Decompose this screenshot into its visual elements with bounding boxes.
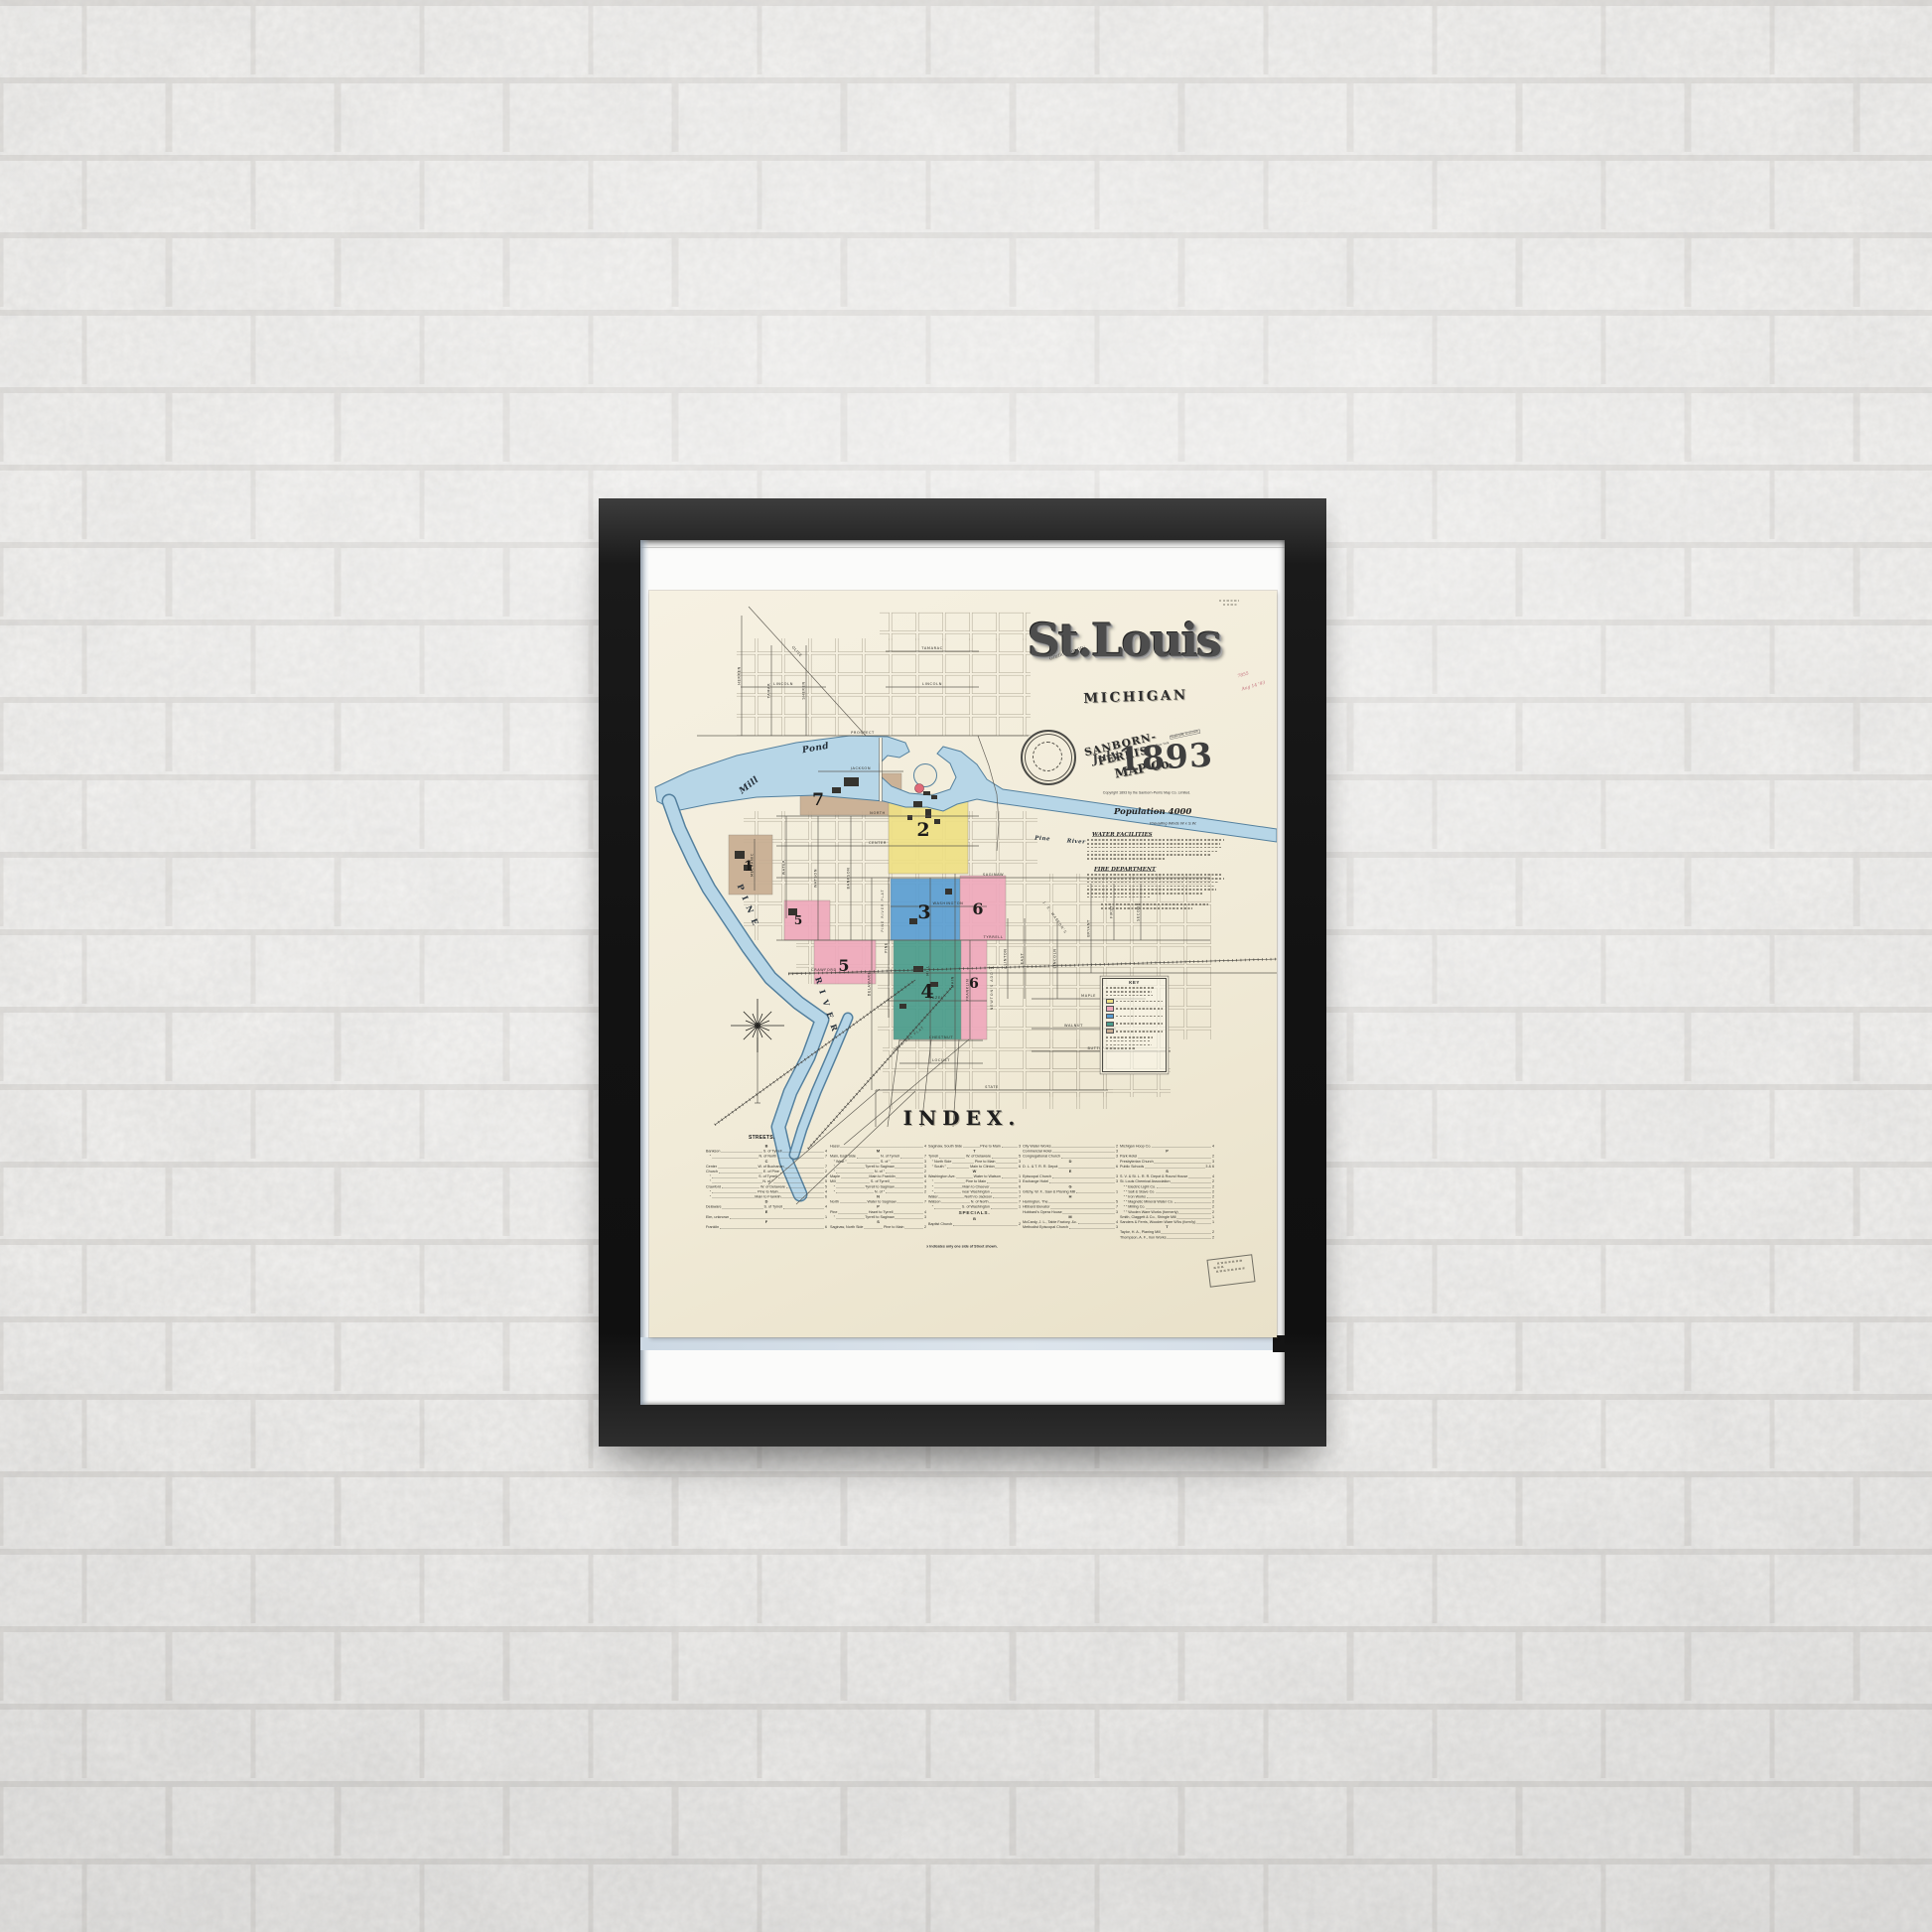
key-title: KEY — [1120, 980, 1149, 983]
street-label: WASHINGTON — [933, 901, 964, 905]
year-label: 1893 — [1117, 736, 1214, 779]
water-facilities-text — [1087, 837, 1226, 862]
street-label: BRYANT — [1086, 919, 1090, 937]
plat-label: NEWTON'S ADD'N — [990, 966, 994, 1010]
street-label: TAMARAC — [920, 646, 942, 650]
street-label: MAPLE — [1081, 994, 1096, 998]
population-label: Population 4000 — [1114, 807, 1191, 817]
street-label: DELAWARE — [867, 971, 871, 996]
mounting-clip — [1273, 1335, 1285, 1352]
street-label: LOCUST — [932, 1058, 950, 1062]
street-label: WATER — [781, 860, 785, 876]
key-box: KEY — [1102, 978, 1167, 1072]
mill-highlight — [915, 784, 924, 793]
building-footprint — [735, 851, 745, 859]
street-label: CLINTON — [1003, 948, 1007, 968]
picture-frame: TAMARACLINCOLNLINCOLNPROSPECTJACKSONNORT… — [599, 498, 1326, 1447]
fire-department-text — [1087, 872, 1226, 900]
plat-label: PINE RIVER PLAT — [881, 889, 885, 931]
index-column: City Water Works2Commercial Hotel3Congre… — [1023, 1144, 1118, 1243]
water-label: River — [1066, 838, 1087, 845]
district-region — [784, 900, 830, 940]
building-footprint — [925, 809, 931, 818]
index-column: Saginaw, South SidePine to Main3TTyrrell… — [928, 1144, 1021, 1243]
street-label: PINE — [884, 942, 888, 953]
sheet-number: 6 — [969, 976, 979, 992]
street-label: SHEREN — [801, 681, 805, 699]
street-label: CENTER — [869, 841, 887, 845]
street-label: MAIN — [950, 976, 954, 988]
street-label: WATSON — [813, 869, 817, 888]
street-label: TYRRELL — [983, 935, 1004, 939]
street-label: JACKSON — [850, 766, 871, 770]
building-footprint — [945, 889, 952, 895]
building-footprint — [832, 787, 841, 793]
sheet-number: 7 — [812, 790, 824, 810]
street-label: STATE — [985, 1085, 999, 1089]
glass-edge — [640, 547, 1285, 548]
street-label: BANKSON — [846, 868, 850, 890]
water-label: Pine — [1034, 835, 1050, 842]
city-blocks — [880, 611, 1031, 640]
index-entry: Thompson, A. F., Iron Works2 — [1120, 1235, 1214, 1240]
street-label: CHESTNUT — [929, 1035, 953, 1039]
building-footprint — [923, 791, 930, 795]
building-footprint — [909, 918, 917, 924]
index-entry: Baptist Church2 — [928, 1222, 1021, 1227]
sheet-number: 5 — [794, 913, 802, 927]
index-entry: Methodist Episcopal Church3 — [1023, 1225, 1118, 1230]
street-label: MILL — [925, 965, 929, 976]
river-island — [914, 764, 937, 787]
index-column: BBanksonS. of Tyrrell4 ”N. of North7CCen… — [706, 1144, 827, 1243]
street-label: HERREN — [737, 666, 741, 685]
building-footprint — [934, 819, 940, 824]
copyright-line: Copyright 1893 by the Sanborn-Perris Map… — [1062, 790, 1400, 799]
general-note-text — [1101, 901, 1210, 911]
street-label: SAGINAW — [983, 873, 1004, 877]
building-footprint — [913, 801, 922, 807]
street-label: CRAWFORD — [811, 968, 837, 972]
building-footprint — [913, 966, 923, 972]
index-entry: Franklin6 — [706, 1225, 827, 1230]
sheet-number: 3 — [917, 901, 930, 923]
glass-reflection — [640, 540, 649, 1405]
street-label: NORTH — [870, 811, 886, 815]
building-footprint — [899, 1004, 906, 1009]
index-column: Michigan Hoop Co.4PPark Hotel2Presbyteri… — [1120, 1144, 1214, 1243]
frame-matte: TAMARACLINCOLNLINCOLNPROSPECTJACKSONNORT… — [640, 540, 1285, 1405]
street-label: LINCOLN — [773, 682, 793, 686]
index-entry: Saginaw, North SidePine to Main2 — [830, 1225, 926, 1230]
photo-of-framed-map: TAMARACLINCOLNLINCOLNPROSPECTJACKSONNORT… — [0, 0, 1932, 1932]
sheet-number: 1 — [744, 859, 754, 875]
index-column: Hazel4MMain, East SideN. of Tyrrell7 ” W… — [830, 1144, 926, 1243]
sheet-number: 2 — [916, 819, 929, 841]
compass-rose-icon — [731, 999, 784, 1103]
sheet-shadow-strip — [640, 1337, 1285, 1350]
street-label: TAMAR — [766, 683, 770, 699]
building-footprint — [844, 777, 859, 786]
index-footnote: x Indicates only one side of Street show… — [897, 1244, 1156, 1253]
index-entry: ”S. of Washington1 — [928, 1204, 1021, 1209]
library-stamp — [1206, 1254, 1255, 1287]
sheet-number: 5 — [838, 956, 849, 975]
sheet-number: 4 — [920, 981, 933, 1003]
street-label: LINCOLN — [922, 682, 942, 686]
map-sheet: TAMARACLINCOLNLINCOLNPROSPECTJACKSONNORT… — [649, 591, 1277, 1337]
street-label: WALNUT — [1064, 1024, 1083, 1028]
specials-header: SPECIALS. — [928, 1210, 1021, 1215]
street-label: EAST — [1020, 952, 1024, 964]
index-heading: INDEX. — [886, 1106, 1038, 1130]
sheet-number: 6 — [972, 899, 983, 918]
building-footprint — [931, 795, 937, 799]
map-title: St.Louis — [1015, 607, 1233, 675]
